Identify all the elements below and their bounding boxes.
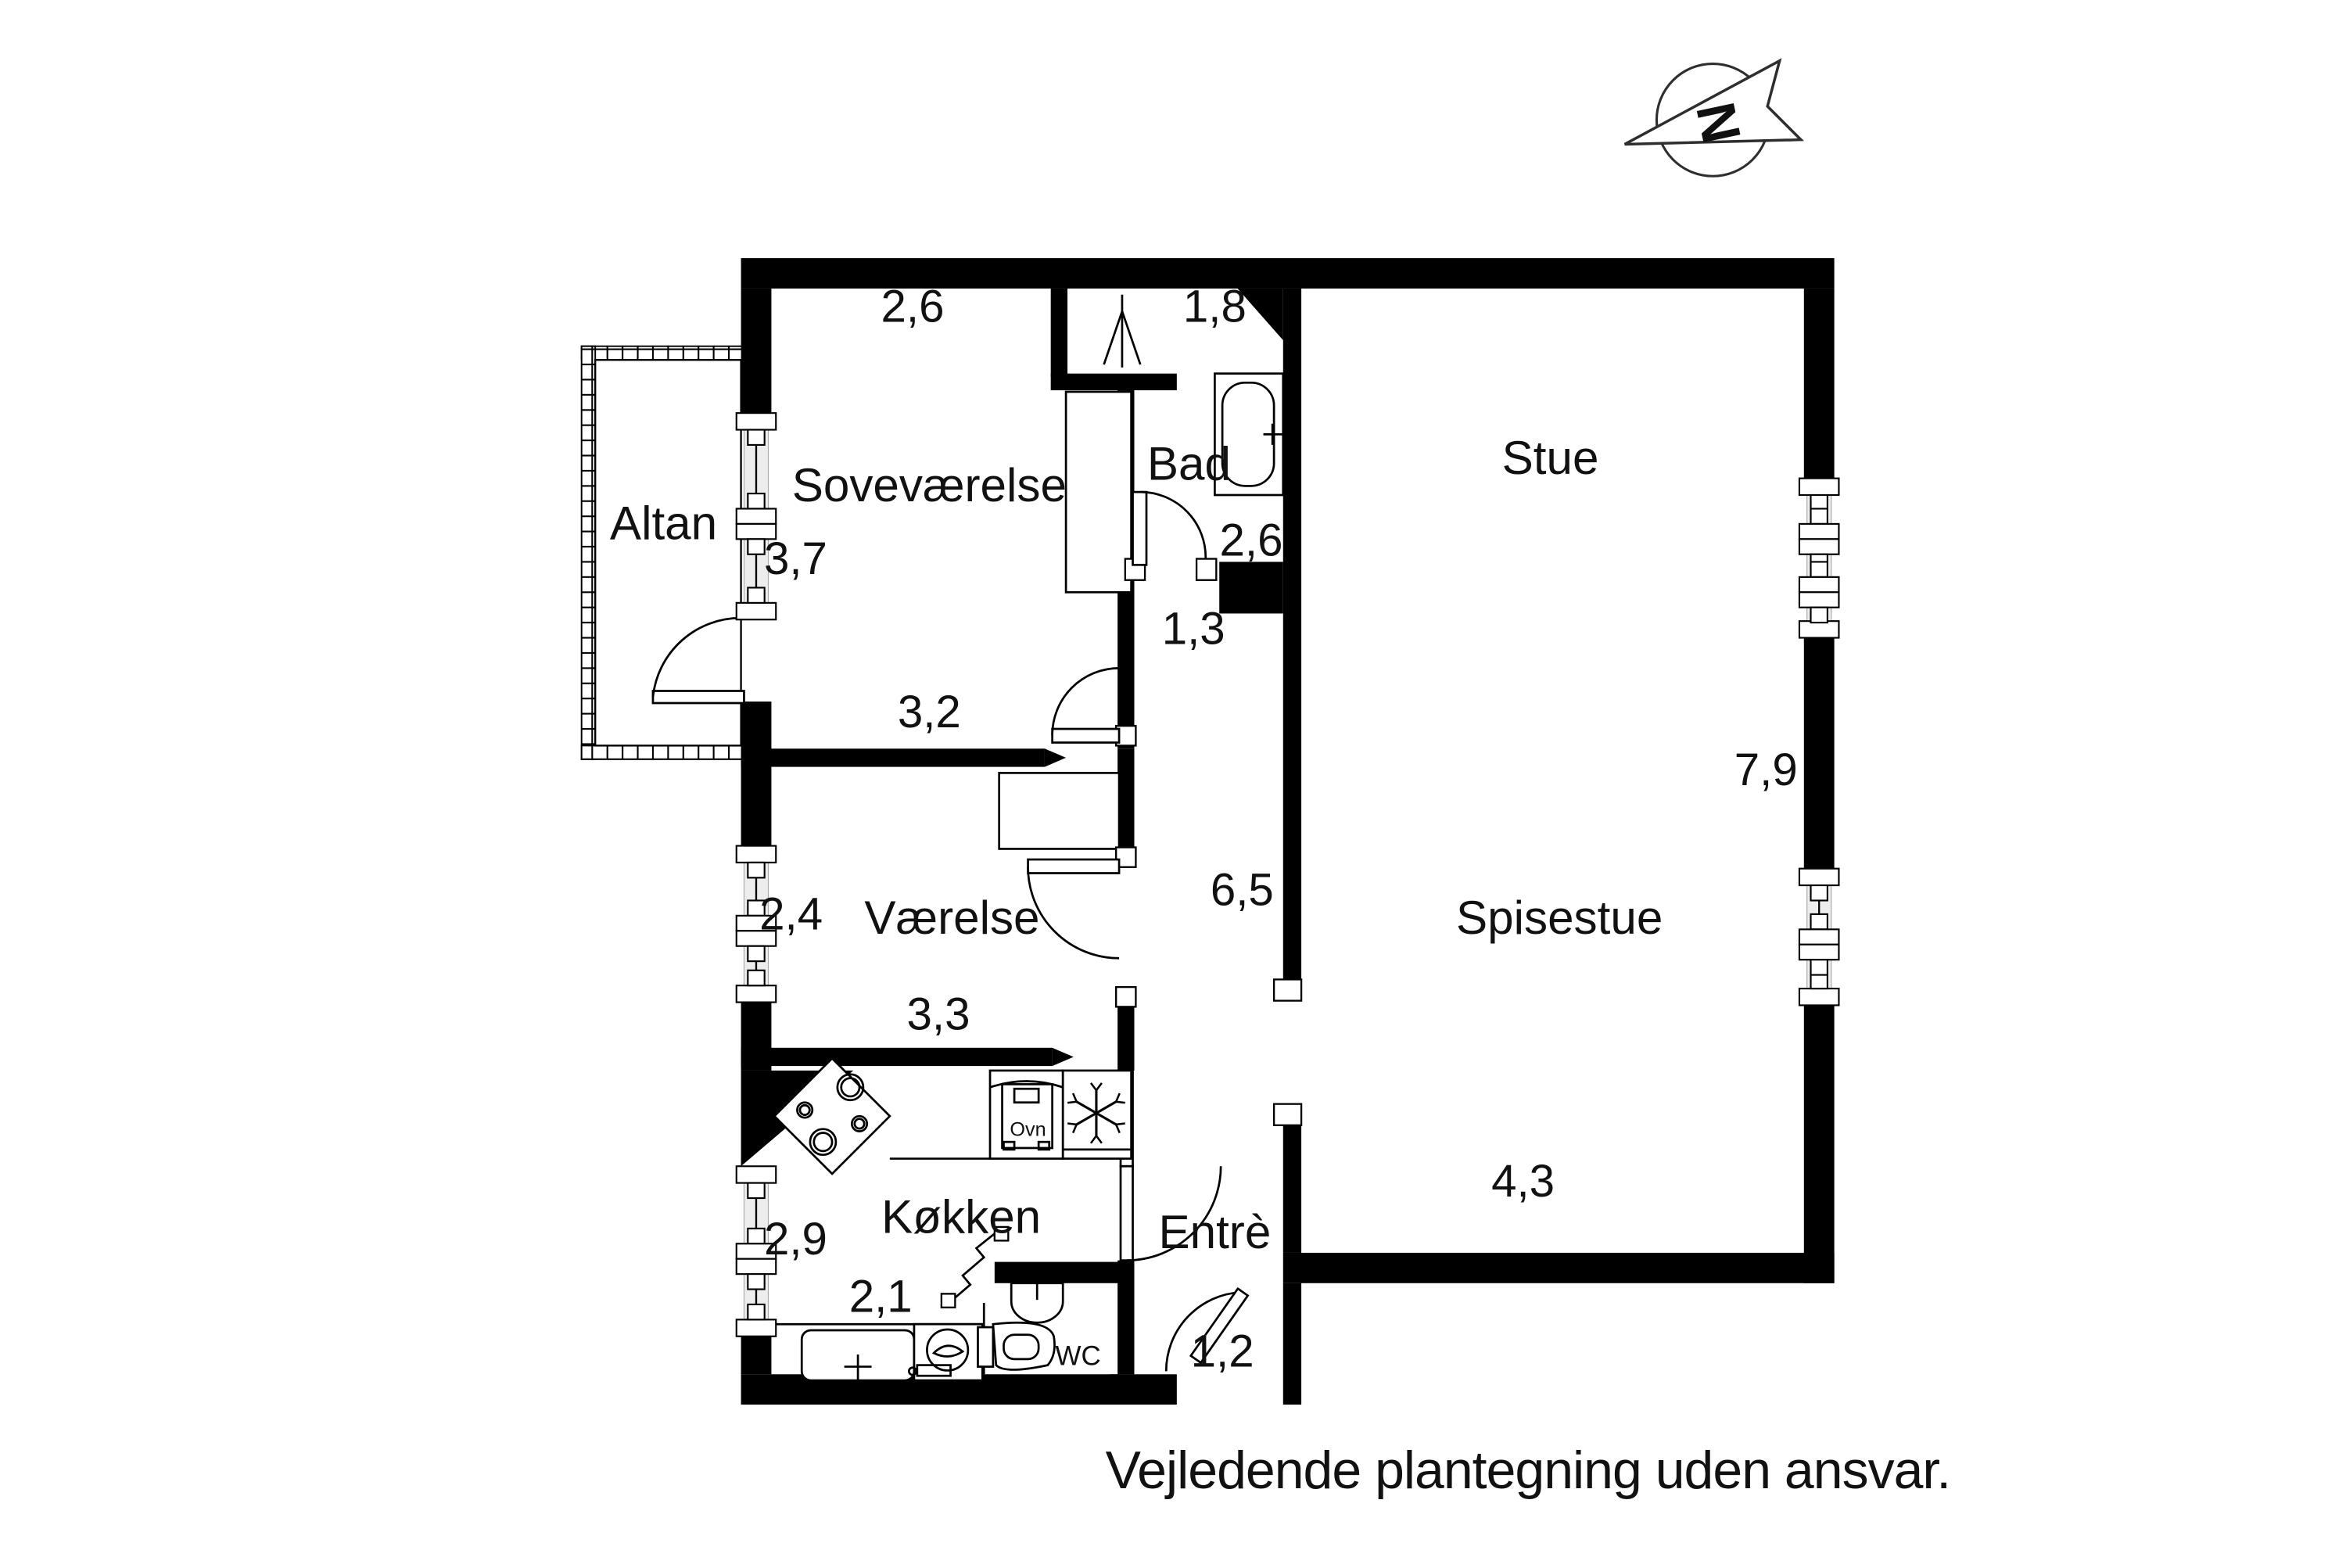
footer-disclaimer: Vejledende plantegning uden ansvar. [1106, 1441, 1951, 1500]
kitchen-sink-icon [802, 1330, 914, 1380]
oven-icon: Ovn [990, 1071, 1063, 1159]
dim-vaerelse-height: 2,4 [759, 888, 823, 939]
wall-shaft-block [1219, 562, 1283, 613]
closet-vaerelse [999, 773, 1119, 849]
wall-right-3 [1804, 1005, 1835, 1283]
door-stop-passage-top [1274, 979, 1301, 1000]
floor-plan-page: Ovn N Altan Soveværelse Bad Stu [0, 0, 2346, 1564]
door-arc-bad [1140, 492, 1206, 558]
room-label-entre: Entrè [1158, 1206, 1271, 1258]
dim-koekken-height: 2,9 [764, 1214, 827, 1265]
dim-entre-door: 1,2 [1191, 1326, 1254, 1377]
oven-label: Ovn [1010, 1118, 1046, 1140]
room-label-vaerelse: Værelse [864, 892, 1039, 944]
wall-wc-top [995, 1262, 1119, 1283]
room-label-altan: Altan [610, 497, 717, 549]
dim-hall-niche: 1,3 [1162, 603, 1225, 654]
wall-vent-niche-left [1051, 289, 1067, 377]
dim-koekken-width: 2,1 [849, 1272, 913, 1322]
wall-right-1 [1804, 289, 1835, 479]
wall-stue-left-upper [1283, 289, 1301, 996]
wall-sovevaerelse-vaerelse [741, 748, 1045, 766]
door-leaf-koekken [1121, 1166, 1133, 1260]
door-arc-vaerelse [1028, 867, 1120, 959]
door-arc-sovevaerelse [1053, 668, 1119, 734]
dim-spisestue-width: 4,3 [1491, 1156, 1555, 1207]
dim-stue-side: 7,9 [1734, 745, 1798, 795]
door-leaf-sovevaerelse [1053, 729, 1119, 742]
balcony-railing-top [582, 346, 744, 360]
wall-stue-left-lower [1283, 1125, 1301, 1253]
dim-vaerelse-width: 3,3 [907, 989, 970, 1040]
dim-sovevaerelse-depth: 3,7 [764, 533, 827, 584]
room-label-stue: Stue [1502, 432, 1599, 484]
door-stop-bad-right [1196, 559, 1216, 580]
balcony-floor-edge [595, 360, 741, 745]
dim-sovevaerelse-width: 2,6 [881, 282, 944, 332]
wall-vent-niche-bottom [1051, 374, 1177, 390]
north-arrow-icon: N [1625, 61, 1801, 177]
wall-entre-right [1283, 1283, 1301, 1405]
wall-vaerelse-koekken [741, 1048, 1053, 1066]
dim-bad-height: 2,6 [1220, 515, 1283, 566]
wall-right-2 [1804, 638, 1835, 869]
door-leaf-bad [1133, 492, 1146, 565]
wall-arrow-end-1 [1045, 748, 1066, 766]
folding-door-end-1 [942, 1294, 955, 1307]
toilet-icon [977, 1322, 1054, 1369]
door-leaf-balcony [653, 691, 744, 703]
dim-bad-width: 1,8 [1183, 282, 1247, 332]
door-stop-passage-bottom [1274, 1104, 1301, 1125]
room-label-spisestue: Spisestue [1456, 892, 1663, 944]
wall-left-2 [741, 701, 772, 845]
wall-spisestue-bottom [1283, 1253, 1835, 1283]
snowflake-icon [1063, 1071, 1131, 1159]
wall-left-1 [741, 289, 772, 413]
wall-wc-right [1117, 1261, 1134, 1375]
room-label-bad: Bad [1147, 438, 1231, 490]
vent-icon [1104, 295, 1141, 368]
room-label-sovevaerelse: Soveværelse [792, 459, 1067, 511]
wall-left-4 [741, 1337, 772, 1375]
balcony-railing-bottom [582, 745, 744, 759]
door-arc-balcony [653, 618, 741, 697]
balcony-railing-left [582, 346, 595, 759]
door-leaf-vaerelse [1028, 859, 1120, 873]
dim-corridor-length: 6,5 [1211, 864, 1274, 915]
wall-arrow-end-2 [1053, 1048, 1074, 1066]
room-label-wc: WC [1056, 1341, 1101, 1372]
room-label-koekken: Køkken [881, 1191, 1041, 1243]
closet-sovevaerelse [1066, 392, 1131, 592]
floor-plan-drawing: Ovn N Altan Soveværelse Bad Stu [0, 0, 2346, 1564]
washing-machine-icon [909, 1324, 982, 1380]
door-stop-vaerelse-bottom [1116, 987, 1135, 1006]
dim-sovevaerelse-bottom: 3,2 [898, 687, 961, 737]
